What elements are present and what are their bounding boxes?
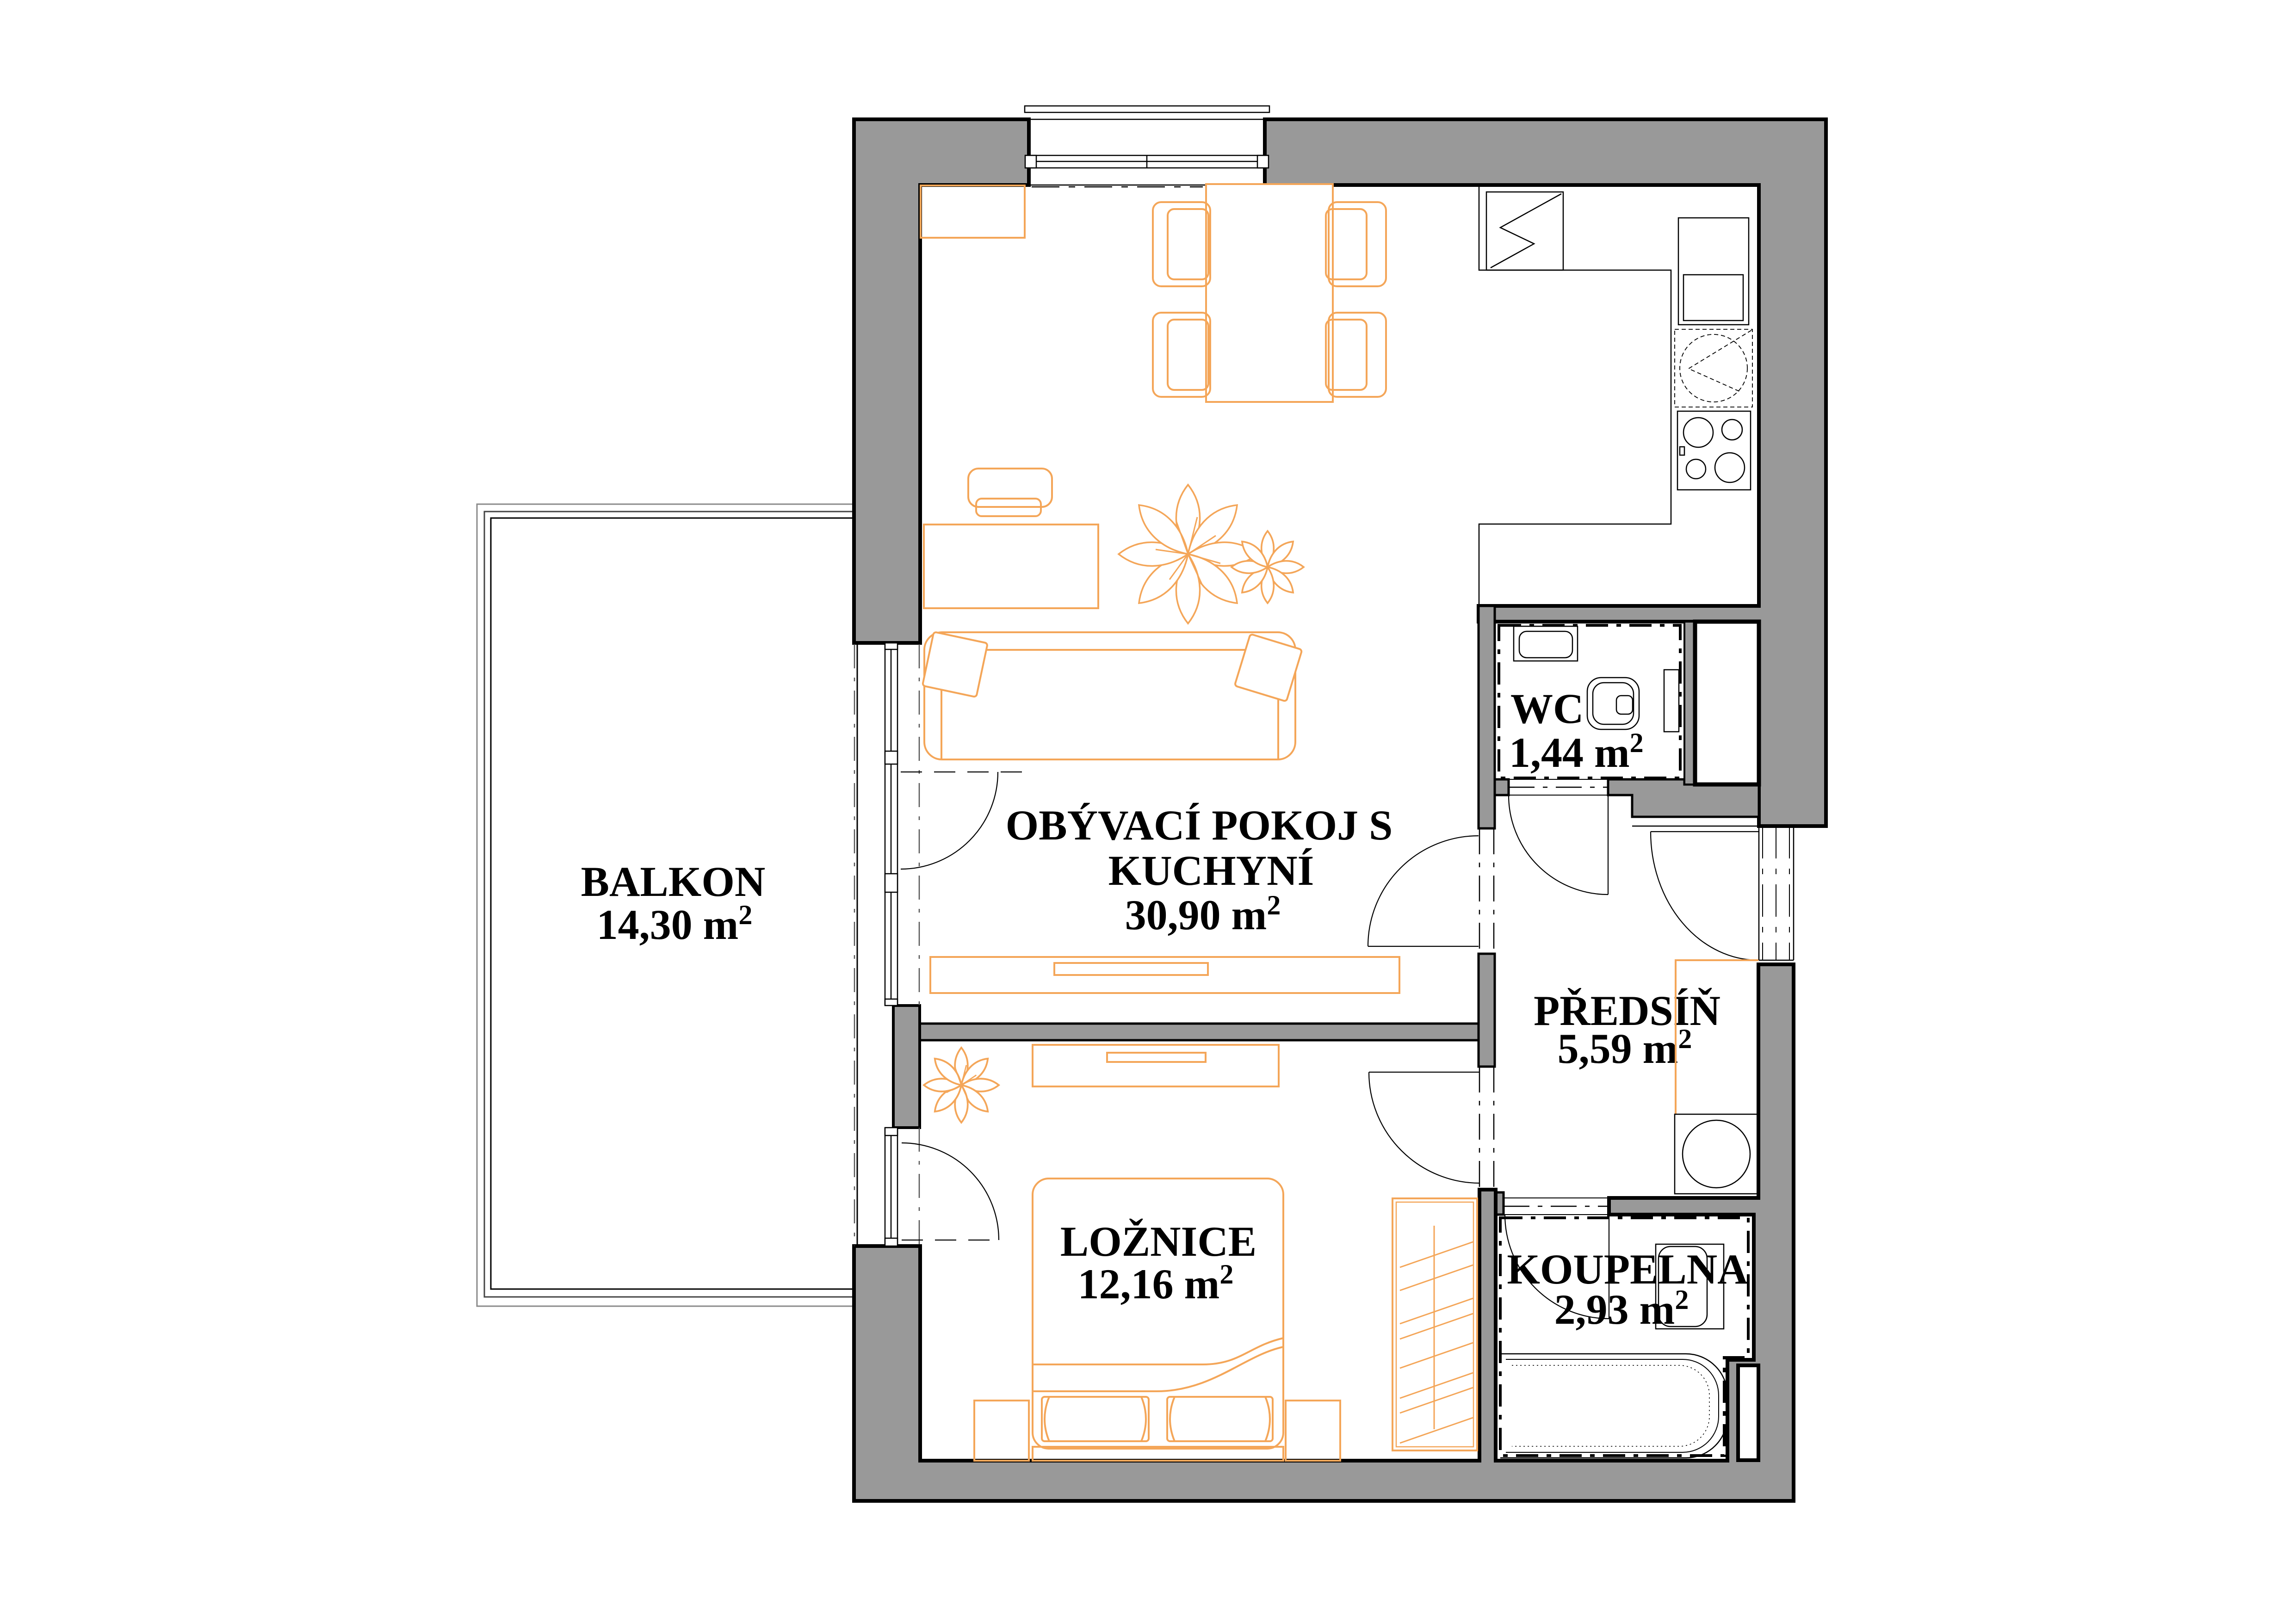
svg-text:BALKON: BALKON (581, 858, 766, 905)
svg-text:OBÝVACÍ POKOJ S: OBÝVACÍ POKOJ S (1006, 802, 1393, 849)
svg-text:12,16 m2: 12,16 m2 (1078, 1259, 1234, 1308)
svg-text:WC: WC (1510, 685, 1584, 732)
svg-text:14,30 m2: 14,30 m2 (597, 900, 753, 948)
svg-text:2,93 m2: 2,93 m2 (1554, 1284, 1689, 1333)
svg-text:1,44 m2: 1,44 m2 (1509, 728, 1644, 776)
svg-text:5,59 m2: 5,59 m2 (1558, 1024, 1692, 1072)
svg-text:LOŽNICE: LOŽNICE (1060, 1218, 1256, 1265)
svg-text:30,90 m2: 30,90 m2 (1125, 890, 1281, 938)
svg-text:KUCHYNÍ: KUCHYNÍ (1108, 847, 1314, 894)
